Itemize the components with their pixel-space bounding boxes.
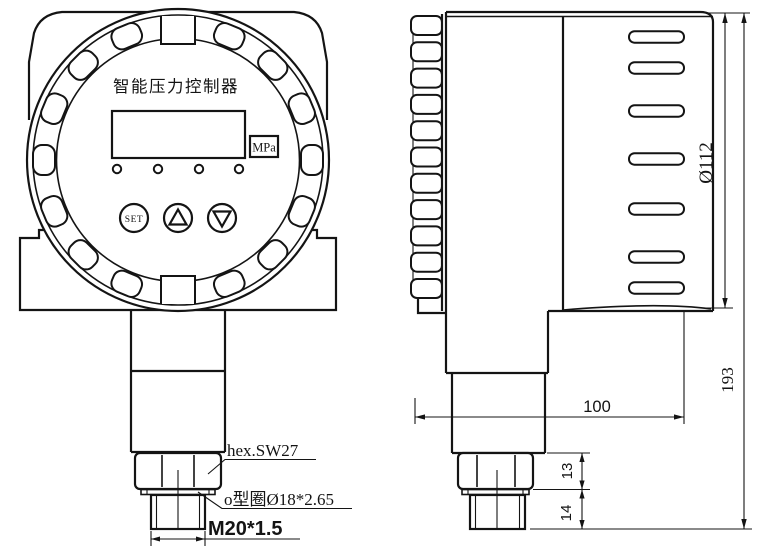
front-view: 智能压力控制器 MPa SET [20,9,352,546]
side-body-slots [629,31,684,294]
dim-height-label: 193 [718,367,737,393]
set-button-label: SET [125,215,143,225]
side-bezel-ribs [411,16,446,313]
side-hex-nut [458,453,533,489]
drawing-canvas: 智能压力控制器 MPa SET [0,0,774,560]
dim-thread-label: 14 [558,505,575,522]
pressure-controller-drawing: 智能压力控制器 MPa SET [0,0,774,560]
callout-oring-label: o型圈Ø18*2.65 [224,490,334,509]
device-title: 智能压力控制器 [113,77,239,96]
callout-hex-label: hex.SW27 [227,441,299,460]
thread-dimension: M20*1.5 [151,518,300,546]
hex-thread-dimensions: 13 14 [533,453,590,529]
front-neck [131,311,225,452]
depth-dimension: 100 [415,311,684,424]
oring-callout: o型圈Ø18*2.65 [198,490,352,509]
bezel-top-notch [161,16,195,44]
side-o-ring [462,490,529,495]
bezel-bottom-notch [161,276,195,304]
diameter-dimension: Ø112 [696,13,750,308]
thread-spec-label: M20*1.5 [208,518,283,540]
unit-badge-label: MPa [252,141,276,155]
side-view: Ø112 193 100 13 [411,12,752,529]
bezel-outer-ring [27,9,329,311]
dim-hex-label: 13 [559,463,576,480]
dim-depth-label: 100 [583,398,611,416]
side-neck [446,311,548,453]
dim-diameter-label: Ø112 [696,142,717,184]
